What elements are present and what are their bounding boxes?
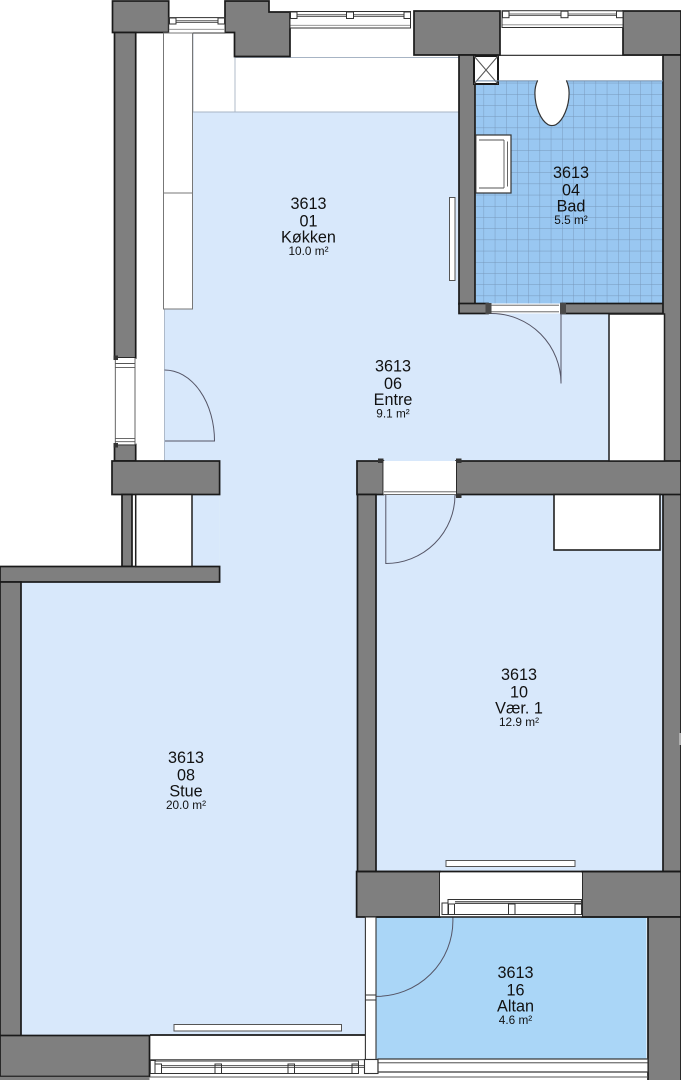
svg-text:5.5 m²: 5.5 m² [554,213,588,227]
svg-text:3613: 3613 [497,964,533,982]
svg-text:10.0 m²: 10.0 m² [289,244,329,258]
svg-text:3613: 3613 [501,666,537,684]
svg-text:20.0 m²: 20.0 m² [166,798,206,812]
svg-text:3613: 3613 [553,164,589,182]
svg-text:3613: 3613 [375,358,411,376]
svg-text:3613: 3613 [290,195,326,213]
svg-text:3613: 3613 [168,749,204,767]
svg-text:4.6 m²: 4.6 m² [499,1013,533,1027]
svg-text:9.1 m²: 9.1 m² [376,407,410,421]
svg-text:12.9 m²: 12.9 m² [499,715,539,729]
